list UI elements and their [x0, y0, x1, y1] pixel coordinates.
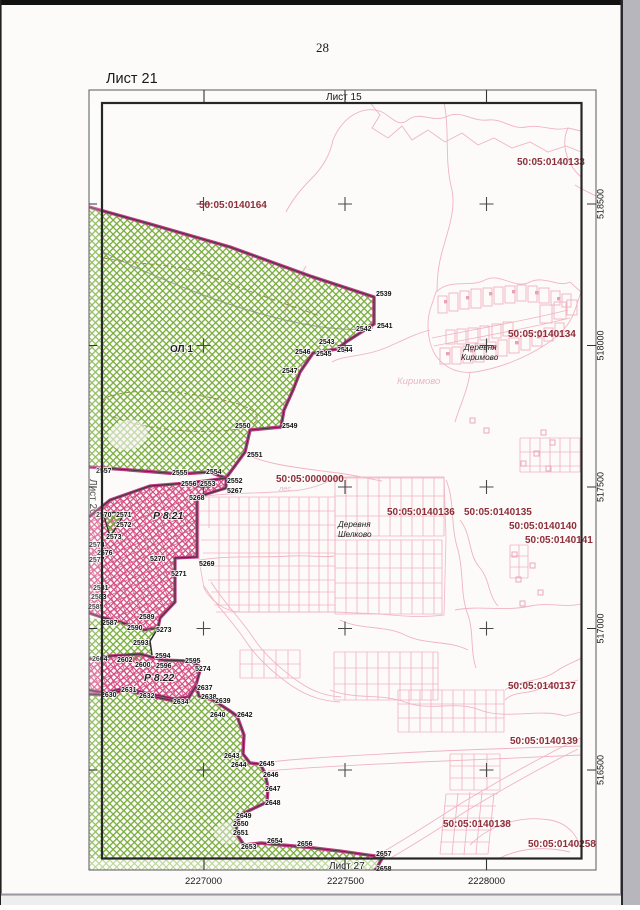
svg-text:Деревня: Деревня: [463, 343, 497, 352]
svg-text:2555: 2555: [172, 470, 188, 477]
svg-text:2637: 2637: [197, 685, 213, 692]
svg-text:2573: 2573: [106, 534, 122, 541]
svg-text:ОЛ 1: ОЛ 1: [170, 344, 193, 355]
svg-text:2643: 2643: [224, 753, 240, 760]
svg-text:Лист 15: Лист 15: [326, 92, 362, 103]
svg-text:2549: 2549: [282, 423, 298, 430]
svg-text:518000: 518000: [596, 330, 606, 360]
svg-text:лес: лес: [278, 484, 291, 493]
svg-text:2650: 2650: [233, 821, 249, 828]
svg-text:517500: 517500: [596, 472, 606, 502]
svg-text:28: 28: [316, 40, 329, 55]
svg-text:50:05:0140135: 50:05:0140135: [464, 507, 532, 518]
svg-text:2543: 2543: [319, 339, 335, 346]
svg-text:2551: 2551: [247, 452, 263, 459]
svg-text:2587: 2587: [102, 620, 118, 627]
svg-text:2552: 2552: [227, 478, 243, 485]
svg-text:5267: 5267: [227, 488, 243, 495]
svg-text:5271: 5271: [171, 571, 187, 578]
svg-text:518500: 518500: [596, 189, 606, 219]
svg-text:2651: 2651: [233, 830, 249, 837]
svg-text:2646: 2646: [263, 772, 279, 779]
svg-text:Киримово: Киримово: [397, 376, 440, 387]
svg-text:5273: 5273: [156, 627, 172, 634]
svg-text:2602: 2602: [117, 657, 133, 664]
svg-text:5268: 5268: [189, 495, 205, 502]
svg-text:Деревня: Деревня: [337, 520, 371, 529]
svg-text:2657: 2657: [376, 851, 392, 858]
svg-text:2544: 2544: [337, 347, 353, 354]
svg-text:2631: 2631: [121, 687, 137, 694]
svg-text:2550: 2550: [235, 423, 251, 430]
svg-text:2653: 2653: [241, 844, 257, 851]
svg-text:2649: 2649: [236, 813, 252, 820]
svg-text:2546: 2546: [295, 349, 311, 356]
svg-text:2545: 2545: [316, 351, 332, 358]
svg-text:2634: 2634: [173, 699, 189, 706]
svg-text:2547: 2547: [282, 368, 298, 375]
svg-text:2642: 2642: [237, 712, 253, 719]
svg-text:2644: 2644: [231, 762, 247, 769]
svg-text:2593: 2593: [133, 640, 149, 647]
svg-text:2541: 2541: [377, 323, 393, 330]
svg-text:Лист 21: Лист 21: [106, 71, 158, 87]
svg-text:2553: 2553: [200, 481, 216, 488]
svg-text:2228000: 2228000: [468, 876, 505, 887]
svg-text:2630: 2630: [101, 692, 117, 699]
svg-text:516500: 516500: [596, 755, 606, 785]
svg-text:50:05:0140138: 50:05:0140138: [443, 819, 511, 830]
svg-text:517000: 517000: [596, 613, 606, 643]
svg-text:Шелково: Шелково: [338, 530, 372, 539]
svg-text:5274: 5274: [195, 666, 211, 673]
svg-text:5270: 5270: [150, 556, 166, 563]
svg-text:2595: 2595: [185, 658, 201, 665]
svg-text:2639: 2639: [215, 698, 231, 705]
svg-text:2542: 2542: [356, 326, 372, 333]
svg-text:2571: 2571: [116, 512, 132, 519]
svg-text:2596: 2596: [156, 663, 172, 670]
svg-text:2227000: 2227000: [185, 876, 222, 887]
svg-text:50:05:0140134: 50:05:0140134: [508, 329, 576, 340]
svg-text:2600: 2600: [135, 662, 151, 669]
svg-text:2656: 2656: [297, 841, 313, 848]
svg-text:50:05:0140136: 50:05:0140136: [387, 507, 455, 518]
svg-text:50:05:0140258: 50:05:0140258: [528, 839, 596, 850]
svg-text:Киримово: Киримово: [461, 353, 499, 362]
svg-text:2572: 2572: [116, 522, 132, 529]
svg-text:2632: 2632: [139, 693, 155, 700]
svg-text:2589: 2589: [139, 614, 155, 621]
svg-text:2539: 2539: [376, 291, 392, 298]
svg-text:2590: 2590: [127, 625, 143, 632]
svg-text:2647: 2647: [265, 786, 281, 793]
svg-text:50:05:0140164: 50:05:0140164: [199, 200, 267, 211]
svg-text:2594: 2594: [155, 653, 171, 660]
svg-text:2640: 2640: [210, 712, 226, 719]
svg-text:2227500: 2227500: [327, 876, 364, 887]
svg-text:5269: 5269: [199, 561, 215, 568]
svg-text:Р 8.21: Р 8.21: [153, 510, 184, 522]
svg-text:2556: 2556: [181, 481, 197, 488]
svg-text:50:05:0000000: 50:05:0000000: [276, 474, 344, 485]
svg-text:2645: 2645: [259, 761, 275, 768]
svg-text:50:05:0140141: 50:05:0140141: [525, 535, 593, 546]
svg-text:2554: 2554: [206, 469, 222, 476]
svg-text:50:05:0140133: 50:05:0140133: [517, 157, 585, 168]
svg-text:2654: 2654: [267, 838, 283, 845]
svg-text:50:05:0140137: 50:05:0140137: [508, 681, 576, 692]
svg-text:50:05:0140139: 50:05:0140139: [510, 736, 578, 747]
svg-text:Р 8.22: Р 8.22: [144, 672, 175, 684]
svg-text:2648: 2648: [265, 800, 281, 807]
svg-text:50:05:0140140: 50:05:0140140: [509, 521, 577, 532]
